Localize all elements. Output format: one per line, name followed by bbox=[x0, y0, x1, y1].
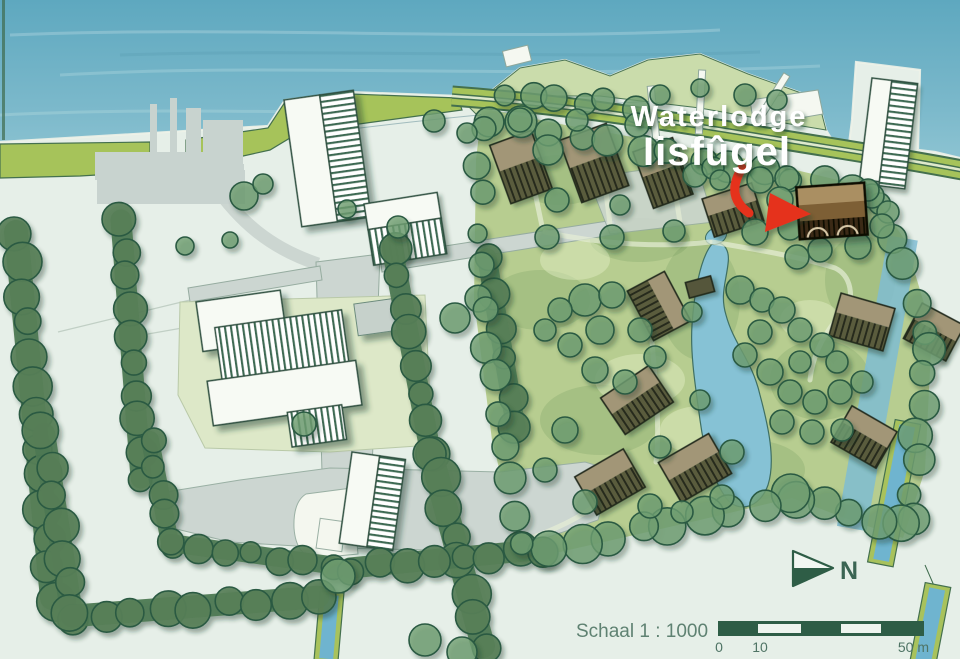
tree bbox=[742, 219, 768, 245]
tree bbox=[480, 360, 511, 391]
tree bbox=[541, 85, 567, 111]
tree bbox=[628, 318, 652, 342]
hedge bbox=[22, 412, 58, 448]
site-plan-map: Waterlodge Iisfûgel N Schaal 1 : 1000 0 … bbox=[0, 0, 960, 659]
tree bbox=[500, 501, 530, 531]
scale-label: Schaal 1 : 1000 bbox=[576, 621, 708, 642]
site-plan: Waterlodge Iisfûgel N Schaal 1 : 1000 0 … bbox=[0, 0, 960, 659]
tree bbox=[387, 216, 409, 238]
hedge bbox=[175, 593, 211, 629]
tree bbox=[649, 436, 671, 458]
tree bbox=[710, 485, 734, 509]
title-line2: Iisfûgel bbox=[643, 130, 791, 174]
hedge bbox=[184, 534, 213, 563]
tree bbox=[494, 85, 515, 106]
tree bbox=[904, 444, 935, 475]
tree bbox=[862, 504, 897, 539]
hedge bbox=[384, 263, 408, 287]
hedge bbox=[240, 542, 261, 563]
hedge bbox=[142, 456, 164, 478]
map-title: Waterlodge Iisfûgel bbox=[631, 101, 808, 174]
hedge bbox=[212, 540, 238, 566]
tree bbox=[910, 361, 935, 386]
tree bbox=[176, 237, 194, 255]
hedge bbox=[121, 350, 146, 375]
tree bbox=[468, 224, 487, 243]
tree bbox=[691, 79, 709, 97]
hedge bbox=[473, 543, 504, 574]
tree bbox=[613, 370, 637, 394]
hedge bbox=[116, 599, 144, 627]
scale-tick-0: 0 bbox=[715, 639, 723, 655]
tree bbox=[440, 303, 470, 333]
hedge bbox=[401, 351, 432, 382]
tree bbox=[769, 297, 795, 323]
tree bbox=[569, 284, 601, 316]
tree bbox=[447, 637, 477, 659]
tree bbox=[789, 351, 811, 373]
tree bbox=[508, 108, 532, 132]
tree bbox=[338, 200, 356, 218]
tree bbox=[463, 152, 490, 179]
tree bbox=[511, 532, 533, 554]
tree bbox=[494, 462, 526, 494]
scale-tick-10: 10 bbox=[752, 639, 768, 655]
tree bbox=[828, 380, 852, 404]
tree bbox=[778, 380, 802, 404]
hedge bbox=[37, 481, 65, 509]
tree bbox=[785, 245, 809, 269]
tree bbox=[599, 282, 625, 308]
tree bbox=[558, 333, 582, 357]
tree bbox=[592, 125, 623, 156]
highlighted-lodge bbox=[796, 183, 867, 240]
tree bbox=[292, 412, 316, 436]
hedge bbox=[37, 453, 68, 484]
tree bbox=[770, 410, 794, 434]
hedge bbox=[115, 320, 147, 352]
tree bbox=[610, 195, 630, 215]
tree bbox=[548, 298, 572, 322]
tree bbox=[910, 391, 940, 421]
scale-tick-50: 50 m bbox=[898, 639, 929, 655]
tree bbox=[534, 319, 556, 341]
tree bbox=[473, 297, 498, 322]
tree bbox=[563, 525, 602, 564]
tree bbox=[690, 390, 710, 410]
tree bbox=[592, 88, 614, 110]
tree bbox=[566, 109, 588, 131]
tree bbox=[409, 624, 441, 656]
tree bbox=[638, 494, 662, 518]
tree bbox=[492, 433, 519, 460]
hedge bbox=[410, 404, 442, 436]
tree bbox=[826, 351, 848, 373]
north-label: N bbox=[840, 557, 858, 585]
tree bbox=[321, 559, 355, 593]
tree bbox=[671, 501, 693, 523]
tree bbox=[748, 320, 772, 344]
tree bbox=[851, 371, 873, 393]
tree bbox=[471, 180, 495, 204]
hedge bbox=[3, 242, 42, 281]
tree bbox=[644, 346, 666, 368]
tree bbox=[720, 440, 744, 464]
tree bbox=[733, 343, 757, 367]
tree bbox=[586, 316, 614, 344]
tree bbox=[533, 458, 557, 482]
hedge bbox=[44, 508, 79, 543]
tree bbox=[457, 123, 477, 143]
hedge bbox=[142, 428, 167, 453]
tree bbox=[600, 225, 624, 249]
tree bbox=[533, 135, 563, 165]
tree bbox=[682, 302, 702, 322]
hedge bbox=[51, 595, 87, 631]
tree bbox=[800, 420, 824, 444]
hedge bbox=[456, 600, 490, 634]
tree bbox=[531, 531, 566, 566]
tree bbox=[469, 252, 494, 277]
hedge bbox=[102, 202, 136, 236]
hedge bbox=[288, 546, 317, 575]
tree bbox=[573, 490, 597, 514]
tree bbox=[750, 490, 781, 521]
hedge bbox=[215, 587, 243, 615]
hedge bbox=[15, 308, 41, 334]
tree bbox=[545, 188, 569, 212]
hedge bbox=[452, 545, 476, 569]
tree bbox=[757, 359, 783, 385]
hedge bbox=[111, 261, 139, 289]
tree bbox=[870, 214, 894, 238]
hedge bbox=[150, 499, 179, 528]
tree bbox=[887, 248, 919, 280]
hedge bbox=[158, 529, 184, 555]
hedge bbox=[409, 382, 433, 406]
tree bbox=[222, 232, 238, 248]
tree bbox=[471, 332, 502, 363]
tree bbox=[788, 318, 812, 342]
tree bbox=[535, 225, 559, 249]
tree bbox=[808, 238, 832, 262]
tree bbox=[552, 417, 578, 443]
tree bbox=[486, 402, 510, 426]
tree bbox=[582, 357, 608, 383]
hedge bbox=[419, 546, 451, 578]
hedge bbox=[56, 568, 85, 597]
hedge bbox=[425, 490, 461, 526]
tree bbox=[903, 290, 931, 318]
tree bbox=[663, 220, 685, 242]
title-line1: Waterlodge bbox=[631, 101, 808, 133]
left-edge-line bbox=[2, 0, 5, 140]
hedge bbox=[241, 590, 272, 621]
tree bbox=[913, 333, 946, 366]
tree bbox=[831, 419, 853, 441]
tree bbox=[253, 174, 273, 194]
tree bbox=[423, 110, 445, 132]
hedge bbox=[392, 315, 426, 349]
tree bbox=[803, 390, 827, 414]
